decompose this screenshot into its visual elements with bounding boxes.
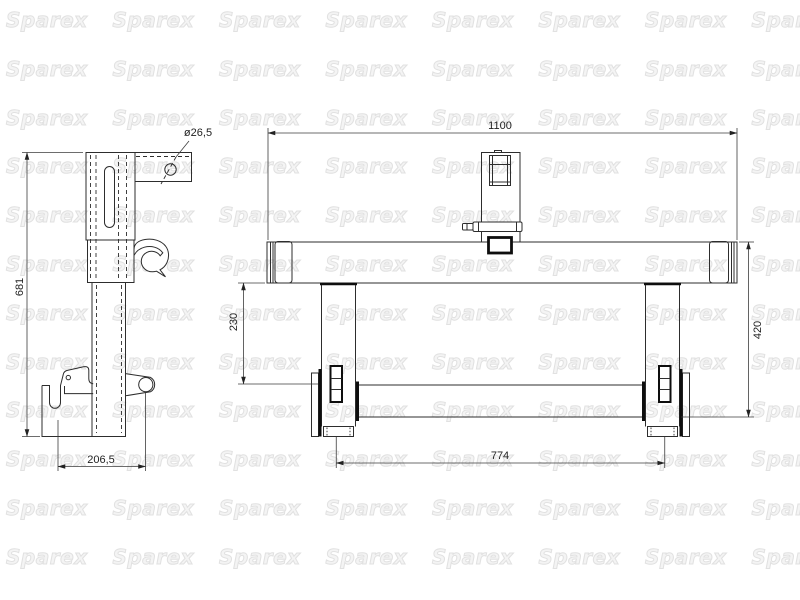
dim-beam-to-bar [238,283,318,384]
side-hook [134,239,169,277]
dim-catch-width-label: 206,5 [87,454,115,466]
beam-right-end-plate [710,242,729,284]
front-right-leg [642,284,690,437]
dim-frame-height [681,242,754,417]
front-centre-tower [463,151,523,254]
right-outer-plate [683,373,690,437]
dim-post-height-label: 681 [14,278,26,296]
drawing-canvas [0,0,800,600]
front-view [238,128,754,468]
beam-left-end-plate [275,242,292,284]
side-catch-pin-hole [66,375,70,379]
side-pin-hole [165,164,176,175]
dim-frame-height-label: 420 [752,321,764,339]
dim-hole-diameter-label: ø26,5 [184,127,212,139]
technical-drawing-page: SparexSparexSparexSparexSparexSparexSpar… [0,0,800,600]
side-lower-lug [126,374,155,396]
side-adjust-slot [105,167,115,228]
side-lug-hole [139,378,153,392]
side-inner-tube [92,283,126,437]
tower-link-pin [463,222,523,232]
hole-leader-line [176,141,189,157]
left-leg-foot [324,427,354,437]
right-leg-foot [648,427,678,437]
tower-hitch-block [489,238,512,254]
side-collar [88,240,135,283]
front-left-leg [312,284,360,437]
dim-bar-spacing-label: 774 [491,450,509,462]
right-roller [659,366,671,402]
side-lower-catch [42,367,93,409]
front-cross-tube [359,385,642,417]
dim-beam-to-bar-label: 230 [228,313,240,331]
side-outer-tube [86,153,135,241]
left-outer-plate [312,373,319,437]
left-roller [331,366,343,402]
dim-beam-length-label: 1100 [488,120,512,132]
side-view [22,141,192,471]
